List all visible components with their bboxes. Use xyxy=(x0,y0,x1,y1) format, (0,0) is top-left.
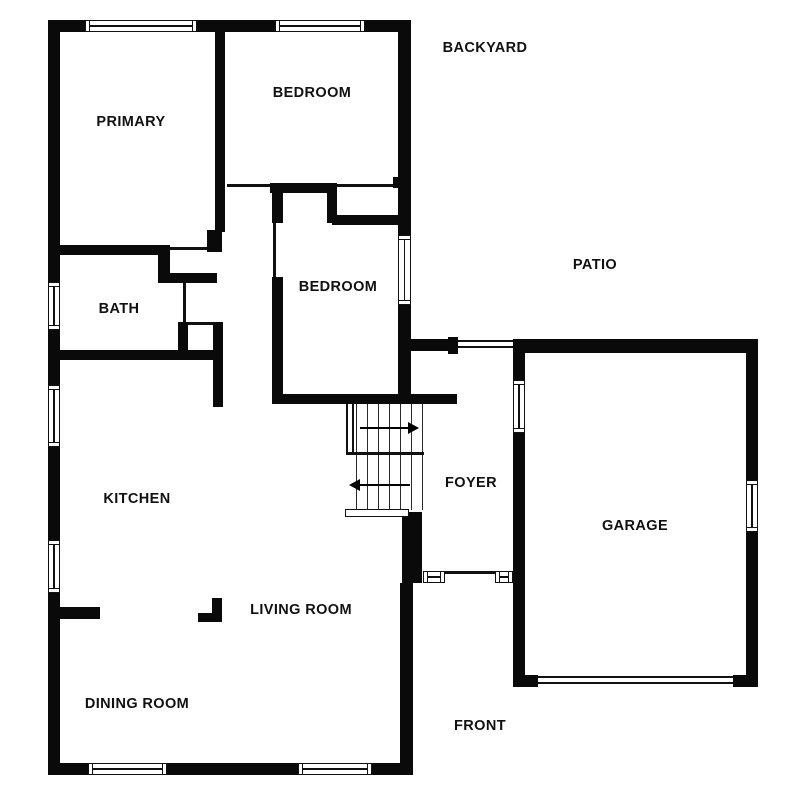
outdoor-label-backyard: BACKYARD xyxy=(443,40,528,56)
wall-segment xyxy=(167,763,298,775)
wall-segment xyxy=(55,607,100,619)
stair-arrow-up-line xyxy=(360,427,410,429)
door-opening xyxy=(183,283,186,322)
wall-segment xyxy=(207,230,222,252)
wall-segment xyxy=(272,394,457,404)
stair-arrow-down-head xyxy=(349,479,360,491)
patio-door-line xyxy=(458,346,513,348)
room-label-garage: GARAGE xyxy=(602,518,668,534)
wall-segment xyxy=(400,583,413,775)
window-symbol xyxy=(85,20,197,32)
garage-door-line xyxy=(538,682,733,684)
wall-segment xyxy=(513,675,538,687)
wall-segment xyxy=(272,277,283,404)
room-label-foyer: FOYER xyxy=(445,475,497,491)
wall-segment xyxy=(746,532,758,687)
floor-plan-canvas: BACKYARD PATIO FRONT PRIMARY BEDROOM BED… xyxy=(0,0,793,800)
wall-segment xyxy=(746,353,758,480)
stair-arrow-up-head xyxy=(408,422,419,434)
outdoor-label-front: FRONT xyxy=(454,718,506,734)
wall-segment xyxy=(48,763,88,775)
front-door-line xyxy=(445,571,495,574)
wall-segment xyxy=(513,433,525,687)
room-label-primary: PRIMARY xyxy=(96,114,165,130)
wall-segment xyxy=(55,350,223,360)
closet-opening xyxy=(337,184,393,187)
window-symbol xyxy=(48,385,60,447)
wall-segment xyxy=(55,245,158,255)
room-label-bath: BATH xyxy=(99,301,140,317)
room-label-kitchen: KITCHEN xyxy=(103,491,170,507)
wall-segment xyxy=(398,20,411,235)
outdoor-label-patio: PATIO xyxy=(573,257,617,273)
wall-segment xyxy=(513,339,758,353)
window-symbol xyxy=(398,235,411,305)
stair-landing-edge xyxy=(345,509,409,517)
room-label-bedroom-top: BEDROOM xyxy=(273,85,352,101)
wall-segment xyxy=(332,215,398,225)
window-symbol xyxy=(48,282,60,330)
wall-segment xyxy=(48,593,60,775)
wall-segment xyxy=(513,353,525,380)
door-opening xyxy=(170,247,207,250)
window-symbol xyxy=(275,20,365,32)
patio-door-line xyxy=(458,340,513,342)
stair-edge-line xyxy=(346,404,348,453)
window-symbol xyxy=(48,540,60,593)
room-label-dining-room: DINING ROOM xyxy=(85,696,189,712)
wall-segment xyxy=(213,322,223,407)
room-label-bedroom-middle: BEDROOM xyxy=(299,279,378,295)
door-opening xyxy=(273,223,276,277)
wall-segment xyxy=(215,32,225,232)
wall-segment xyxy=(48,447,60,540)
wall-segment xyxy=(272,183,283,223)
window-symbol xyxy=(88,763,167,775)
room-label-living-room: LIVING ROOM xyxy=(250,602,352,618)
wall-segment xyxy=(733,675,758,687)
wall-segment xyxy=(402,512,422,583)
wall-segment xyxy=(158,273,217,283)
front-door-sidelight xyxy=(495,571,513,583)
wall-segment xyxy=(398,305,411,404)
window-symbol xyxy=(513,380,525,433)
door-opening xyxy=(227,184,270,187)
window-symbol xyxy=(298,763,372,775)
wall-segment xyxy=(198,613,222,622)
wall-segment xyxy=(48,20,60,282)
garage-door-line xyxy=(538,676,733,678)
stair-arrow-down-line xyxy=(360,484,410,486)
wall-segment xyxy=(448,337,458,354)
wall-segment xyxy=(393,177,401,188)
front-door-sidelight xyxy=(423,571,445,583)
closet-opening xyxy=(188,322,213,325)
stair-edge-line xyxy=(352,404,354,453)
window-symbol xyxy=(746,480,758,532)
